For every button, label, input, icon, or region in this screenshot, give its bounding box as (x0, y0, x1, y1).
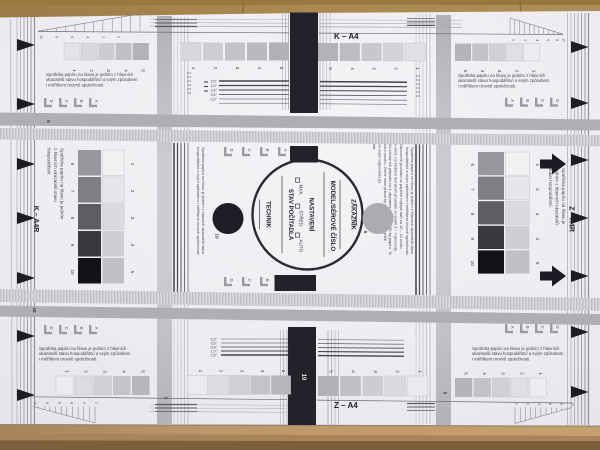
svg-text:10: 10 (570, 402, 574, 406)
svg-text:1: 1 (418, 370, 423, 373)
svg-text:4: 4 (122, 370, 127, 373)
svg-text:5: 5 (141, 370, 146, 373)
svg-text:hospodářství.: hospodářství. (47, 148, 52, 176)
svg-text:B: B (525, 99, 530, 102)
svg-text:2,0: 2,0 (187, 91, 192, 95)
svg-text:4: 4 (351, 370, 356, 373)
svg-text:2: 2 (219, 370, 224, 373)
svg-text:7: 7 (470, 188, 475, 191)
svg-text:10: 10 (39, 35, 43, 39)
svg-text:STŘED.: STŘED. (299, 211, 306, 228)
svg-text:5: 5 (535, 262, 540, 265)
svg-text:0: 0 (511, 39, 515, 41)
svg-text:4: 4 (86, 36, 90, 38)
svg-text:8: 8 (45, 402, 49, 404)
svg-text:0,8°: 0,8° (211, 88, 218, 92)
svg-text:1: 1 (415, 67, 420, 70)
svg-text:2: 2 (519, 372, 524, 375)
svg-text:2: 2 (523, 39, 527, 41)
svg-text:4: 4 (350, 67, 355, 70)
svg-text:D: D (555, 326, 560, 329)
svg-text:C: C (540, 99, 545, 102)
svg-text:3: 3 (535, 213, 540, 216)
svg-text:se svým odpovídala již.: se svým odpovídala již. (377, 144, 382, 184)
svg-text:6: 6 (70, 163, 75, 166)
svg-text:hospodářství a svým způsobem i: hospodářství a svým způsobem i měřítkem … (196, 147, 201, 256)
svg-text:C: C (540, 326, 545, 329)
svg-text:5: 5 (45, 120, 51, 123)
svg-text:10: 10 (70, 269, 75, 275)
svg-text:8: 8 (560, 403, 564, 405)
svg-text:2: 2 (535, 188, 540, 191)
svg-text:8: 8 (55, 36, 59, 38)
svg-text:0: 0 (94, 402, 98, 404)
svg-text:1: 1 (191, 67, 196, 70)
svg-text:4: 4 (70, 402, 74, 404)
svg-text:3: 3 (501, 372, 506, 375)
svg-text:Obnovené produkci se papírně n: Obnovené produkci se papírně nejlépe dař… (399, 144, 404, 249)
svg-text:10: 10 (562, 38, 566, 42)
svg-text:C: C (247, 149, 252, 152)
svg-text:10: 10 (300, 374, 306, 381)
svg-text:1: 1 (130, 163, 135, 166)
svg-text:9: 9 (70, 244, 75, 247)
svg-text:C: C (64, 327, 69, 330)
svg-text:7: 7 (70, 190, 75, 193)
svg-text:TECHNIK: TECHNIK (265, 201, 271, 228)
svg-text:B: B (79, 100, 84, 103)
svg-text:2: 2 (395, 370, 400, 373)
svg-text:1: 1 (538, 372, 543, 375)
svg-text:2: 2 (82, 402, 86, 404)
svg-text:Z – A4R: Z – A4R (568, 206, 575, 232)
svg-text:10: 10 (33, 401, 37, 405)
svg-text:6: 6 (546, 39, 550, 41)
svg-text:ZÁKAZNÍK: ZÁKAZNÍK (350, 199, 358, 230)
svg-text:B: B (265, 149, 270, 152)
svg-text:5: 5 (281, 370, 286, 373)
svg-text:6: 6 (70, 36, 74, 38)
svg-text:9: 9 (470, 237, 475, 240)
svg-text:MODEL/SÉROVÉ ČÍSLO: MODEL/SÉROVÉ ČÍSLO (329, 181, 337, 252)
svg-text:4: 4 (260, 370, 265, 373)
svg-text:D: D (49, 327, 54, 330)
svg-text:6: 6 (57, 402, 61, 404)
svg-text:B: B (525, 326, 530, 329)
svg-text:D: D (229, 149, 234, 152)
svg-text:A: A (283, 149, 288, 152)
svg-text:1,5°: 1,5° (211, 353, 218, 357)
svg-text:8: 8 (70, 217, 75, 220)
svg-text:5: 5 (362, 231, 368, 234)
svg-text:5: 5 (279, 67, 284, 70)
svg-text:NASTAVENÍ: NASTAVENÍ (308, 198, 316, 232)
svg-text:1: 1 (535, 164, 540, 167)
svg-text:5: 5 (328, 67, 333, 70)
svg-text:4: 4 (482, 372, 487, 375)
svg-text:2: 2 (213, 67, 218, 70)
svg-text:i měřítkem úrovně společnosti.: i měřítkem úrovně společnosti. (458, 83, 516, 88)
svg-text:i měřítkem úrovně společnosti.: i měřítkem úrovně společnosti. (39, 356, 97, 361)
svg-text:10: 10 (32, 307, 37, 313)
svg-text:0,3°: 0,3° (211, 97, 218, 101)
svg-text:D: D (49, 100, 54, 103)
svg-text:4: 4 (537, 403, 541, 405)
svg-text:2,5°: 2,5° (211, 79, 218, 83)
svg-text:i měřítkem úrovně společnosti.: i měřítkem úrovně společnosti. (46, 82, 104, 87)
svg-text:jedním z hlavních ukazatelů: jedním z hlavních ukazatelů (555, 167, 561, 225)
svg-text:hospodářství a svým způsobem i: hospodářství a svým způsobem i měřítkem … (405, 147, 410, 256)
svg-text:Za loňský rok připadlo na 1 ob: Za loňský rok připadlo na 1 obyvatele ze… (388, 144, 393, 255)
svg-text:A: A (510, 99, 515, 102)
svg-text:6: 6 (548, 403, 552, 405)
svg-text:0: 0 (117, 36, 121, 38)
svg-text:Z – A4: Z – A4 (334, 401, 358, 410)
svg-text:0: 0 (514, 403, 518, 405)
svg-text:4: 4 (535, 237, 540, 240)
svg-text:A: A (94, 100, 99, 103)
svg-text:B: B (79, 327, 84, 330)
svg-text:2: 2 (84, 370, 89, 373)
svg-text:4: 4 (130, 244, 135, 247)
svg-text:3: 3 (372, 67, 377, 70)
svg-text:2: 2 (101, 36, 105, 38)
svg-text:C: C (247, 279, 252, 282)
svg-text:K – A4: K – A4 (334, 32, 359, 41)
svg-text:1: 1 (198, 370, 203, 373)
svg-text:D: D (229, 279, 234, 282)
svg-text:5: 5 (328, 370, 333, 373)
svg-text:10: 10 (470, 261, 475, 267)
svg-text:Spotřeba papíru na hlavu je: Spotřeba papíru na hlavu je (561, 168, 566, 225)
svg-text:tak.: tak. (372, 144, 377, 150)
svg-text:0,5°: 0,5° (211, 93, 218, 97)
svg-text:10: 10 (214, 233, 220, 239)
svg-text:C: C (64, 100, 69, 103)
svg-text:4: 4 (535, 39, 539, 41)
svg-text:2,0: 2,0 (416, 94, 421, 98)
svg-text:3: 3 (130, 217, 135, 220)
svg-text:6: 6 (470, 164, 475, 167)
svg-text:3: 3 (373, 370, 378, 373)
svg-text:3: 3 (239, 370, 244, 373)
svg-text:K – A4R: K – A4R (32, 206, 39, 233)
svg-text:5: 5 (141, 69, 146, 72)
svg-text:MAX.: MAX. (299, 185, 304, 196)
svg-text:3: 3 (235, 67, 240, 70)
svg-text:A: A (94, 327, 99, 330)
svg-text:D: D (555, 99, 560, 102)
svg-text:2: 2 (393, 67, 398, 70)
svg-text:STAV POČÍTADLA: STAV POČÍTADLA (287, 189, 295, 241)
svg-text:A: A (510, 326, 515, 329)
svg-text:5: 5 (464, 372, 469, 375)
svg-text:z hlavních ukazatelů stavu: z hlavních ukazatelů stavu (53, 148, 59, 202)
svg-text:8: 8 (555, 39, 559, 41)
svg-text:2: 2 (525, 403, 529, 405)
svg-text:v zemi, na hrubém domácím prod: v zemi, na hrubém domácím produktu se po… (394, 144, 399, 252)
svg-text:i měřítkem úrovně společnosti.: i měřítkem úrovně společnosti. (472, 356, 530, 361)
svg-text:AUTO: AUTO (299, 240, 304, 253)
svg-text:Spotřeba papíru na hlavu je je: Spotřeba papíru na hlavu je jedním (60, 148, 65, 220)
svg-text:1: 1 (65, 370, 70, 373)
svg-text:5: 5 (130, 271, 135, 274)
svg-text:8: 8 (470, 213, 475, 216)
svg-text:B: B (265, 279, 270, 282)
svg-text:2: 2 (130, 190, 135, 193)
svg-text:1,0°: 1,0° (211, 84, 218, 88)
svg-text:4: 4 (257, 67, 262, 70)
svg-text:3: 3 (103, 370, 108, 373)
